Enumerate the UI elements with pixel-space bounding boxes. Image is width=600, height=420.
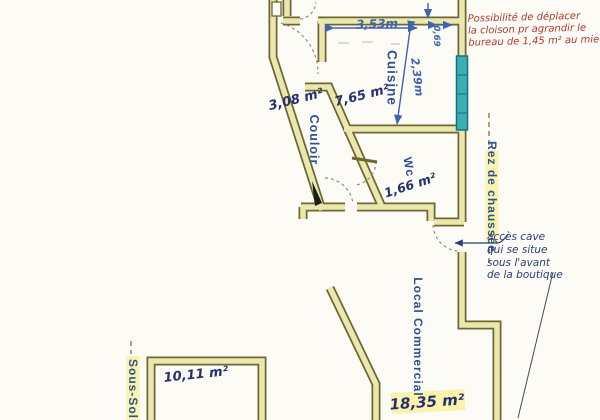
pencil-marks — [338, 42, 400, 44]
note-cave-access-line: de la boutique — [487, 269, 597, 282]
door-jamb-notch — [272, 2, 281, 16]
note-cave-access: accès cave qui se situe sous l'avant de … — [487, 231, 597, 282]
floor-plan-scan: Cuisine Couloir Wc Rez de chaussée Local… — [0, 0, 600, 420]
window-marker — [457, 56, 468, 130]
wc-door-leaf — [352, 158, 377, 162]
note-move-partition: Possibilité de déplacer la cloison pr ag… — [468, 10, 600, 50]
boutique-leader-line — [518, 272, 553, 418]
walls-outline — [151, 0, 497, 420]
note-cave-access-line: sous l'avant — [487, 257, 597, 270]
note-cave-access-line: accès cave — [487, 231, 597, 244]
floor-plan-drawing — [0, 0, 600, 420]
note-cave-access-line: qui se situe — [487, 244, 597, 257]
